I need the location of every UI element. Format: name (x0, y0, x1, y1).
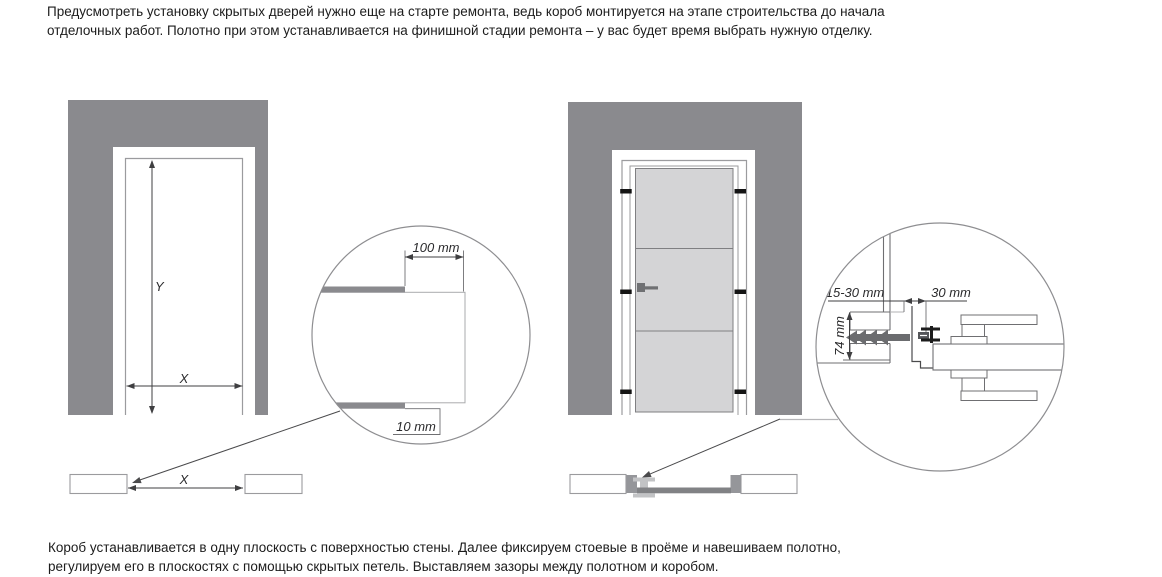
hinge-plate-bottom-near (951, 370, 987, 378)
right-plan-view (570, 475, 797, 498)
plan-wall-right (741, 475, 797, 494)
finish-thickness-label: 10 mm (396, 419, 436, 434)
door-installation-infographic: Предусмотреть установку скрытых дверей н… (0, 0, 1162, 577)
door-handle-lever (645, 286, 658, 289)
plan-door-leaf (637, 488, 731, 494)
right-callout-leader (644, 419, 780, 477)
dimension-plan-width: X (128, 472, 243, 491)
opening-width-label: X (179, 371, 190, 386)
plan-wall-left (70, 475, 127, 494)
plan-width-label: X (179, 472, 190, 487)
hinge-body-bottom (962, 378, 985, 391)
dimension-anchor-zone: 74 mm (832, 312, 853, 360)
hinge-plate-bottom-far (961, 391, 1037, 401)
clip-left-top (620, 189, 632, 194)
offset-label: 100 mm (413, 240, 460, 255)
plan-wall-right (245, 475, 302, 494)
left-callout-leader (134, 411, 340, 482)
plan-hinge-arm-bottom (633, 494, 655, 498)
right-elevation (568, 102, 838, 420)
hinge-body-top (962, 325, 985, 337)
clip-left-bottom (620, 390, 632, 395)
clip-right-middle (735, 290, 747, 295)
wall-finish-strip-top (300, 287, 405, 293)
door-panel (636, 169, 734, 413)
left-elevation: Y X (68, 100, 268, 415)
plan-hinge-arm-top (633, 478, 655, 482)
door-handle-rose (637, 283, 645, 292)
clip-right-bottom (735, 390, 747, 395)
hinge-plate-top-far (961, 315, 1037, 325)
frame-depth-label: 30 mm (931, 285, 971, 300)
plan-frame-profile-right (731, 475, 742, 493)
wall-finish-strip-bottom (300, 403, 405, 409)
hinge-plate-top-near (951, 337, 987, 345)
bracket-flange-bottom (921, 339, 940, 342)
clip-right-top (735, 189, 747, 194)
diagram-canvas: Y X (0, 0, 1162, 577)
arrowhead-left (128, 485, 136, 491)
clip-left-middle (620, 290, 632, 295)
gap-label: 15-30 mm (826, 285, 885, 300)
arrowhead-right (235, 485, 243, 491)
opening-height-label: Y (155, 279, 165, 294)
wall-cross-section (305, 292, 465, 403)
left-callout-arrowhead (132, 477, 142, 483)
right-callout-arrowhead (642, 471, 652, 478)
left-plan-view: X (70, 472, 302, 494)
bracket-flange-top (921, 328, 940, 331)
anchor-zone-label: 74 mm (832, 316, 847, 356)
plan-wall-left (570, 475, 626, 494)
door-leaf-section (933, 344, 1065, 370)
